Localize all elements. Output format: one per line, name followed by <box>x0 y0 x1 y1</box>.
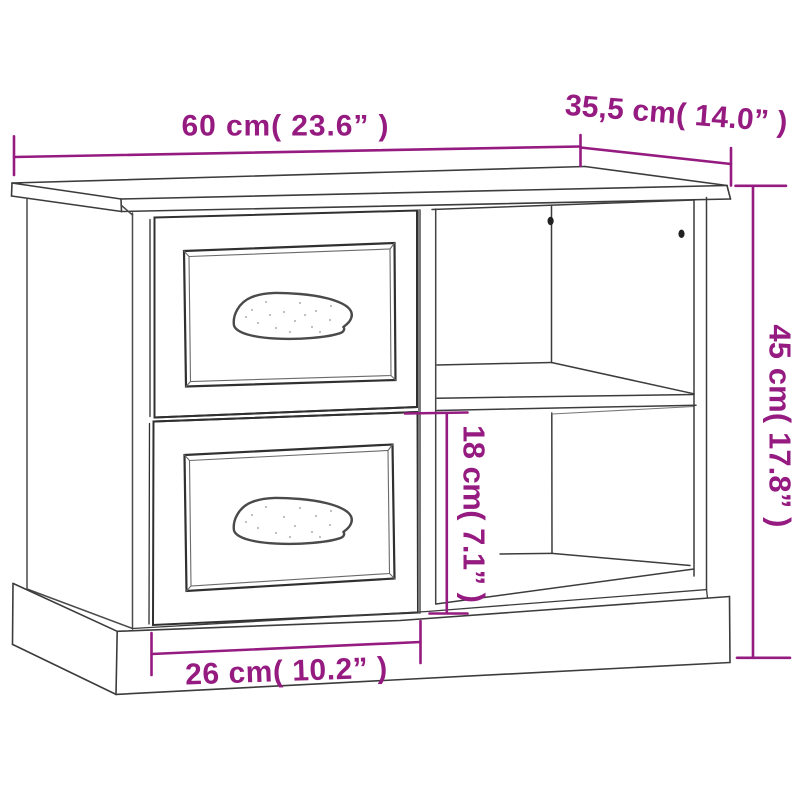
svg-text:45 cm( 17.8” ): 45 cm( 17.8” ) <box>763 324 798 527</box>
svg-text:26 cm( 10.2” ): 26 cm( 10.2” ) <box>185 651 388 691</box>
svg-text:60 cm( 23.6” ): 60 cm( 23.6” ) <box>182 110 389 143</box>
svg-text:18 cm( 7.1” ): 18 cm( 7.1” ) <box>457 425 492 603</box>
